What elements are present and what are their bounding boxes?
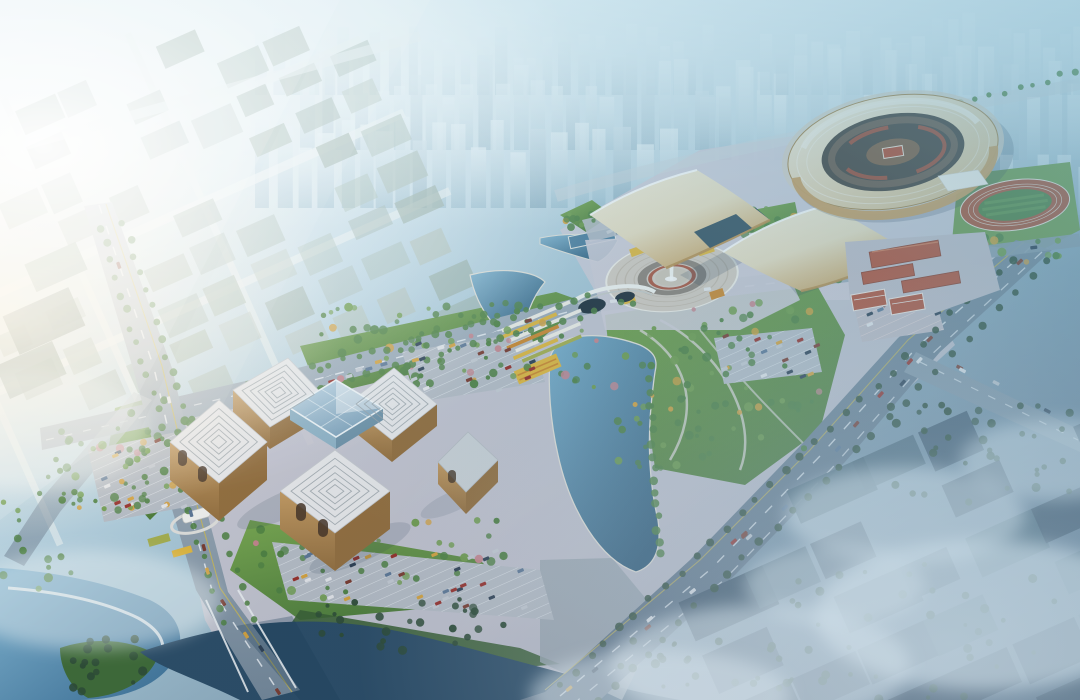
rendering-canvas xyxy=(0,0,1080,700)
aerial-rendering xyxy=(0,0,1080,700)
